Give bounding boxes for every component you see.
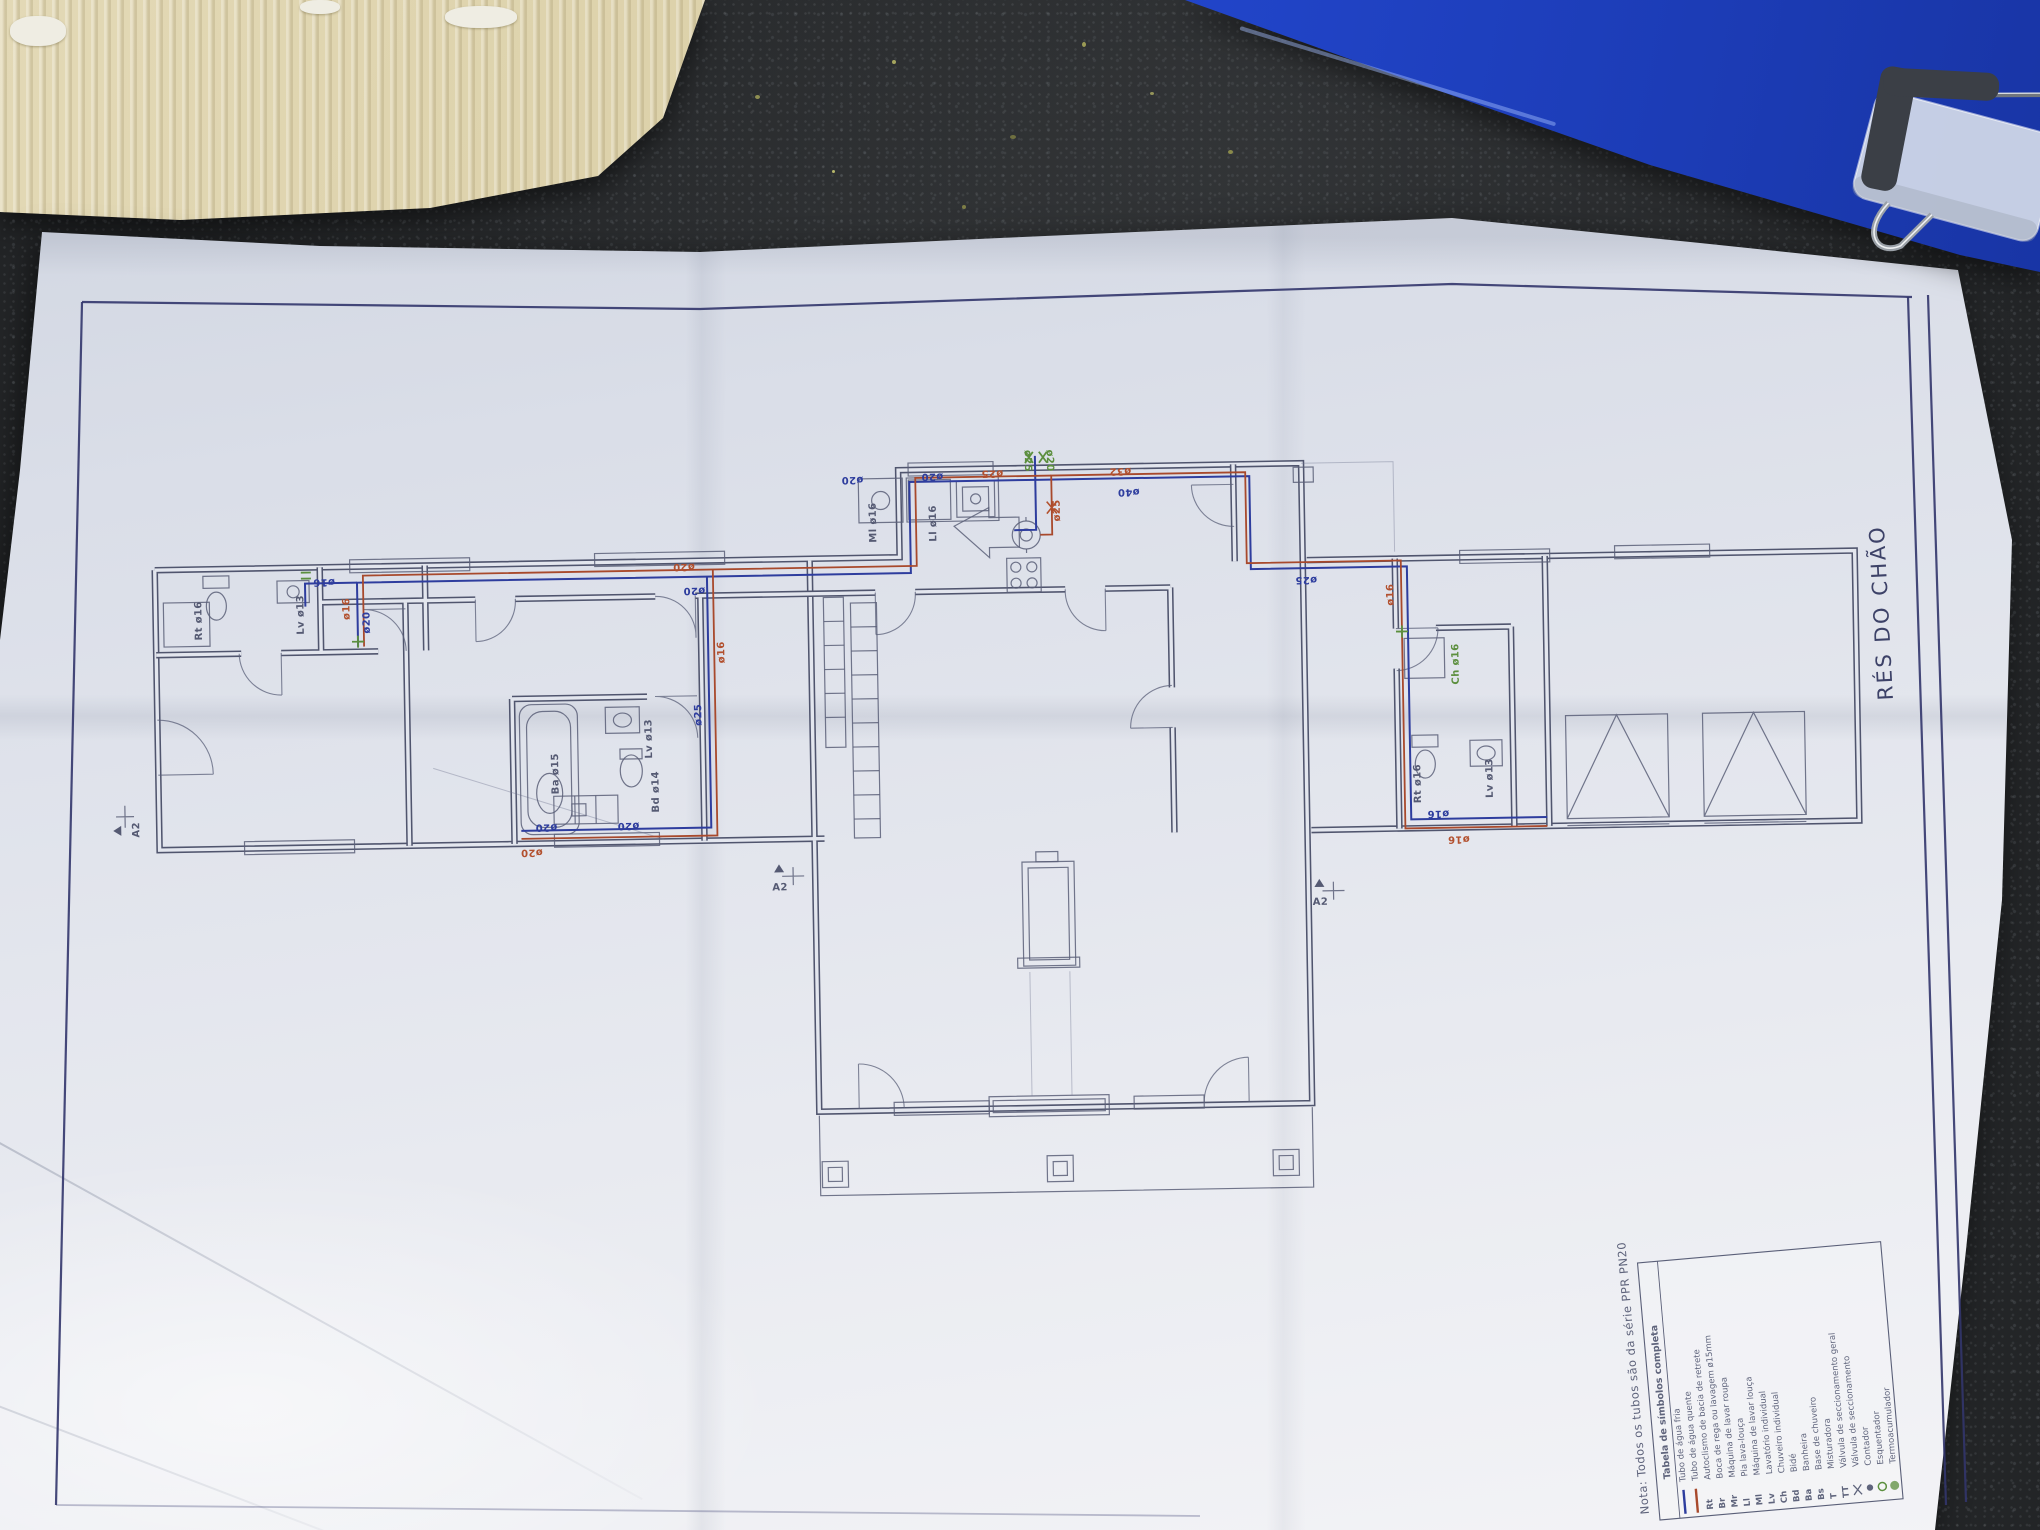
plan-group: ø16ø20ø20ø16ø20ø20ø20ø20ø25ø16ø20ø20ø25ø… [107, 436, 1866, 1208]
pipe-label: ø20 [1044, 449, 1055, 471]
svg-text:T: T [1829, 1492, 1839, 1499]
pipe-label: ø16 [1448, 833, 1470, 844]
pipe-label: Ba ø15 [550, 753, 562, 794]
section-marker: A2 [772, 864, 805, 894]
svg-text:Bs: Bs [1816, 1488, 1827, 1500]
pipe-label: ø20 [921, 470, 943, 481]
pipe-label: Lv ø13 [295, 595, 307, 635]
sheet-title: RÉS DO CHÃO [1863, 524, 1898, 701]
pipe-label: ø25 [693, 704, 704, 726]
pipe-label: ø20 [521, 846, 543, 857]
cold-water-pipes [303, 447, 1547, 839]
section-marker: A2 [1312, 878, 1345, 908]
photo-scene: ø16ø20ø20ø16ø20ø20ø20ø20ø25ø16ø20ø20ø25ø… [0, 0, 2040, 1530]
svg-text:Ll: Ll [1742, 1497, 1753, 1506]
pipe-label: ø32 [1109, 465, 1131, 476]
svg-text:A2: A2 [1313, 897, 1329, 908]
svg-text:Bd: Bd [1791, 1489, 1802, 1502]
floor-plan-drawing: ø16ø20ø20ø16ø20ø20ø20ø20ø25ø16ø20ø20ø25ø… [0, 0, 2040, 1530]
pipe-label: Ll ø16 [928, 505, 940, 542]
pipe-label: ø40 [1117, 486, 1139, 497]
shelving [428, 462, 1399, 846]
door-arcs [154, 481, 1447, 1121]
svg-text:Ml: Ml [1755, 1493, 1766, 1505]
pipe-label: ø16 [1385, 584, 1396, 606]
pipe-label: ø25 [1022, 450, 1033, 472]
legend-entry-label: Bidé [1787, 1453, 1800, 1473]
pipe-label: ø25 [1295, 574, 1317, 585]
svg-text:Ch: Ch [1779, 1490, 1790, 1503]
pipe-label: Bd ø14 [650, 771, 662, 813]
pipe-label: Ch ø16 [1450, 643, 1462, 684]
pipe-label: ø16 [313, 576, 335, 587]
bathroom2-fixtures [519, 703, 643, 835]
svg-text:A2: A2 [772, 882, 788, 893]
pipe-label: Lv ø13 [643, 719, 655, 759]
svg-text:Lv: Lv [1767, 1492, 1778, 1504]
pipe-label: ø20 [617, 820, 639, 831]
walls [153, 454, 1864, 1124]
windows [238, 449, 1719, 1127]
pipe-label: Rt ø16 [1412, 764, 1424, 803]
svg-text:A2: A2 [131, 822, 142, 838]
legend-table: Tabela de símbolos completaTubo de água … [1638, 1242, 1904, 1520]
hot-water-pipes [361, 467, 1547, 847]
chimney [1016, 851, 1082, 1096]
pipe-label: ø16 [1427, 808, 1449, 819]
svg-text:Rt: Rt [1705, 1499, 1716, 1510]
pipe-label: Lv ø13 [1484, 758, 1496, 798]
water-heater-arrow-icon [954, 507, 1020, 558]
kitchen-fixtures [858, 476, 1041, 595]
svg-text:TT: TT [1841, 1485, 1852, 1498]
pipe-label: ø20 [841, 474, 863, 485]
section-markers: A2A2A2 [113, 785, 1345, 929]
valve-icon [352, 636, 364, 648]
svg-text:Ba: Ba [1804, 1488, 1815, 1501]
bathroom1-fixtures [163, 575, 310, 648]
pipe-label: ø20 [673, 561, 695, 572]
pipe-label: ø25 [1052, 499, 1063, 521]
pipe-label: ø25 [981, 467, 1003, 478]
svg-text:Br: Br [1717, 1497, 1728, 1509]
pipe-label: Rt ø16 [193, 601, 205, 640]
pipe-label: Ml ø16 [868, 503, 880, 543]
pipe-label: ø20 [535, 821, 557, 832]
pipe-label: ø20 [361, 611, 372, 633]
section-marker: A2 [113, 805, 143, 838]
svg-text:Mr: Mr [1730, 1494, 1741, 1508]
garage-doors [1565, 711, 1806, 818]
pipe-label: ø16 [341, 598, 352, 620]
pipe-label: ø20 [683, 585, 705, 596]
pipe-label: ø16 [716, 641, 727, 663]
